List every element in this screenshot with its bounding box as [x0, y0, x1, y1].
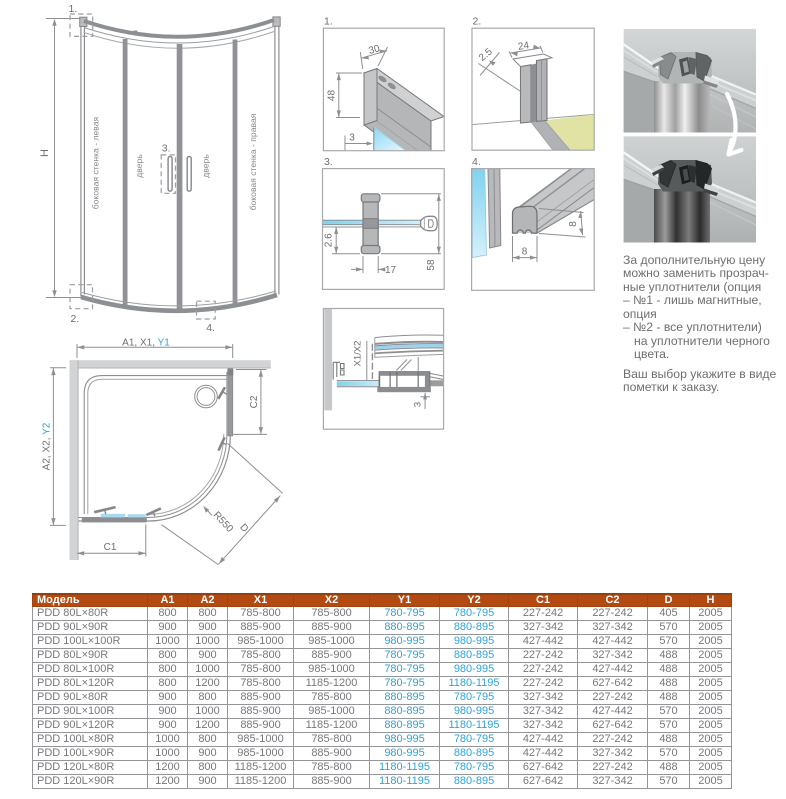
- svg-text:17: 17: [385, 265, 397, 276]
- svg-text:R550: R550: [211, 510, 236, 535]
- svg-text:3.: 3.: [324, 156, 333, 168]
- svg-text:A2, X2, Y2: A2, X2, Y2: [42, 422, 53, 470]
- svg-text:A1, X1, Y1: A1, X1, Y1: [122, 338, 170, 349]
- svg-text:30: 30: [367, 43, 381, 57]
- svg-text:4.: 4.: [472, 156, 481, 168]
- svg-text:X1/X2: X1/X2: [352, 341, 363, 367]
- svg-text:дверь: дверь: [134, 154, 144, 178]
- svg-text:8: 8: [522, 247, 528, 258]
- svg-text:D: D: [237, 522, 250, 535]
- svg-text:2.6: 2.6: [324, 233, 335, 247]
- svg-text:1.: 1.: [69, 3, 78, 15]
- svg-text:3.: 3.: [162, 143, 171, 155]
- svg-text:24: 24: [517, 40, 530, 53]
- svg-text:4.: 4.: [206, 322, 215, 334]
- svg-text:боковая стенка - правая: боковая стенка - правая: [248, 113, 258, 210]
- svg-text:58: 58: [426, 259, 437, 271]
- svg-text:C2: C2: [249, 395, 260, 408]
- svg-text:8: 8: [568, 221, 579, 227]
- svg-text:1.: 1.: [324, 16, 333, 28]
- svg-text:C1: C1: [104, 542, 117, 553]
- svg-text:2.: 2.: [473, 16, 482, 28]
- svg-text:3: 3: [412, 402, 423, 407]
- svg-text:3: 3: [349, 133, 355, 144]
- svg-text:2.: 2.: [71, 313, 80, 325]
- svg-text:боковая стенка - левая: боковая стенка - левая: [91, 116, 101, 209]
- svg-text:дверь: дверь: [201, 154, 211, 178]
- svg-text:48: 48: [327, 90, 338, 102]
- svg-text:H: H: [39, 149, 51, 157]
